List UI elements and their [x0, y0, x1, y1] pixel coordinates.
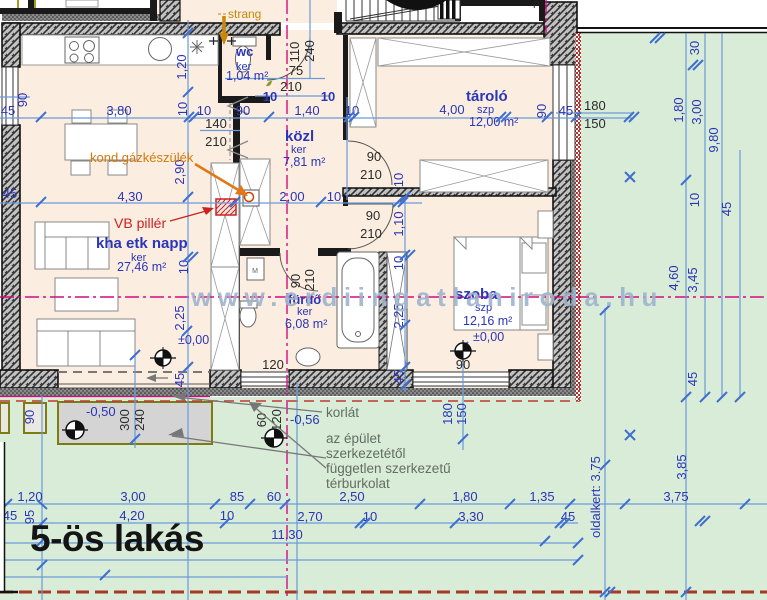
svg-text:7,81 m²: 7,81 m²	[283, 155, 325, 169]
svg-text:45: 45	[172, 373, 187, 387]
svg-text:4,30: 4,30	[117, 189, 142, 204]
svg-text:kha etk napp: kha etk napp	[96, 235, 188, 252]
svg-text:210: 210	[360, 226, 382, 241]
svg-text:10: 10	[345, 103, 359, 118]
svg-text:közl: közl	[285, 128, 314, 145]
svg-text:12,00 m²: 12,00 m²	[469, 115, 518, 129]
svg-text:90: 90	[367, 149, 381, 164]
svg-text:240: 240	[132, 409, 147, 431]
svg-text:90: 90	[15, 93, 30, 107]
svg-text:1,80: 1,80	[452, 489, 477, 504]
svg-text:3,45: 3,45	[685, 267, 700, 292]
svg-text:5-ös lakás: 5-ös lakás	[30, 518, 204, 559]
svg-text:tároló: tároló	[466, 88, 508, 105]
svg-text:független szerkezetű: független szerkezetű	[326, 461, 451, 476]
svg-text:M: M	[252, 268, 258, 275]
svg-text:2,00: 2,00	[279, 189, 304, 204]
svg-text:szerkezetétől: szerkezetétől	[326, 446, 406, 461]
svg-text:10: 10	[327, 189, 341, 204]
svg-text:210: 210	[360, 167, 382, 182]
svg-text:210: 210	[280, 79, 302, 94]
svg-text:75: 75	[289, 63, 303, 78]
svg-text:90: 90	[22, 410, 37, 424]
svg-text:45: 45	[685, 372, 700, 386]
svg-text:3,30: 3,30	[458, 509, 483, 524]
svg-text:85: 85	[230, 489, 244, 504]
svg-text:1,40: 1,40	[294, 103, 319, 118]
svg-text:3,85: 3,85	[674, 454, 689, 479]
svg-text:9,80: 9,80	[706, 127, 721, 152]
svg-text:az épület: az épület	[326, 431, 381, 446]
svg-text:60: 60	[267, 489, 281, 504]
svg-text:30: 30	[687, 41, 702, 55]
svg-text:45: 45	[559, 103, 573, 118]
svg-text:90: 90	[366, 208, 380, 223]
svg-text:240: 240	[302, 40, 317, 62]
svg-text:1,80: 1,80	[671, 97, 686, 122]
svg-text:1,35: 1,35	[529, 489, 554, 504]
svg-text:11,30: 11,30	[271, 527, 303, 542]
svg-text:45: 45	[3, 186, 17, 201]
svg-text:27,46 m²: 27,46 m²	[117, 260, 166, 274]
svg-text:150: 150	[584, 116, 606, 131]
svg-text:-0,50: -0,50	[86, 404, 116, 419]
svg-text:6,08 m²: 6,08 m²	[285, 317, 327, 331]
svg-text:10: 10	[391, 256, 406, 270]
svg-text:10: 10	[175, 102, 190, 116]
svg-text:45: 45	[719, 202, 734, 216]
svg-text:2,50: 2,50	[339, 489, 364, 504]
svg-text:12,16 m²: 12,16 m²	[463, 314, 512, 328]
svg-text:±0,00: ±0,00	[473, 330, 504, 344]
svg-text:180: 180	[584, 98, 606, 113]
svg-text:60: 60	[254, 413, 269, 427]
svg-text:120: 120	[269, 409, 284, 431]
svg-text:45: 45	[1, 103, 15, 118]
svg-text:45: 45	[391, 370, 406, 384]
svg-text:120: 120	[262, 357, 284, 372]
svg-text:300: 300	[117, 409, 132, 431]
svg-text:90: 90	[236, 103, 250, 118]
svg-text:10: 10	[391, 173, 406, 187]
svg-text:110: 110	[287, 42, 302, 63]
svg-text:3,80: 3,80	[106, 103, 131, 118]
svg-text:wc: wc	[235, 44, 253, 59]
svg-text:180: 180	[440, 403, 455, 425]
svg-text:210: 210	[205, 134, 227, 149]
svg-text:VB pillér: VB pillér	[114, 215, 166, 231]
svg-text:4,00: 4,00	[439, 102, 464, 117]
svg-text:4,60: 4,60	[666, 265, 681, 290]
svg-text:-0,56: -0,56	[290, 412, 320, 427]
svg-text:10: 10	[197, 103, 211, 118]
svg-text:150: 150	[454, 403, 469, 425]
svg-text:2,25: 2,25	[172, 305, 187, 330]
svg-text:P: P	[533, 0, 540, 11]
svg-text:www.erdiingatlaniroda.hu: www.erdiingatlaniroda.hu	[190, 282, 664, 312]
svg-text:térburkolat: térburkolat	[326, 476, 390, 491]
svg-text:1,20: 1,20	[174, 54, 189, 79]
svg-text:kond.gázkészülék: kond.gázkészülék	[90, 150, 194, 165]
svg-text:3,75: 3,75	[663, 489, 688, 504]
svg-text:10: 10	[687, 193, 702, 207]
svg-text:45: 45	[561, 509, 575, 524]
svg-text:10: 10	[263, 89, 277, 104]
svg-text:strang: strang	[228, 7, 261, 21]
svg-text:3,00: 3,00	[689, 99, 704, 124]
svg-text:1,10: 1,10	[391, 211, 406, 236]
svg-text:3,00: 3,00	[120, 489, 145, 504]
svg-text:2,70: 2,70	[297, 509, 322, 524]
svg-text:korlát: korlát	[326, 405, 359, 420]
svg-text:10: 10	[321, 89, 335, 104]
svg-text:1,04 m²: 1,04 m²	[226, 69, 268, 83]
